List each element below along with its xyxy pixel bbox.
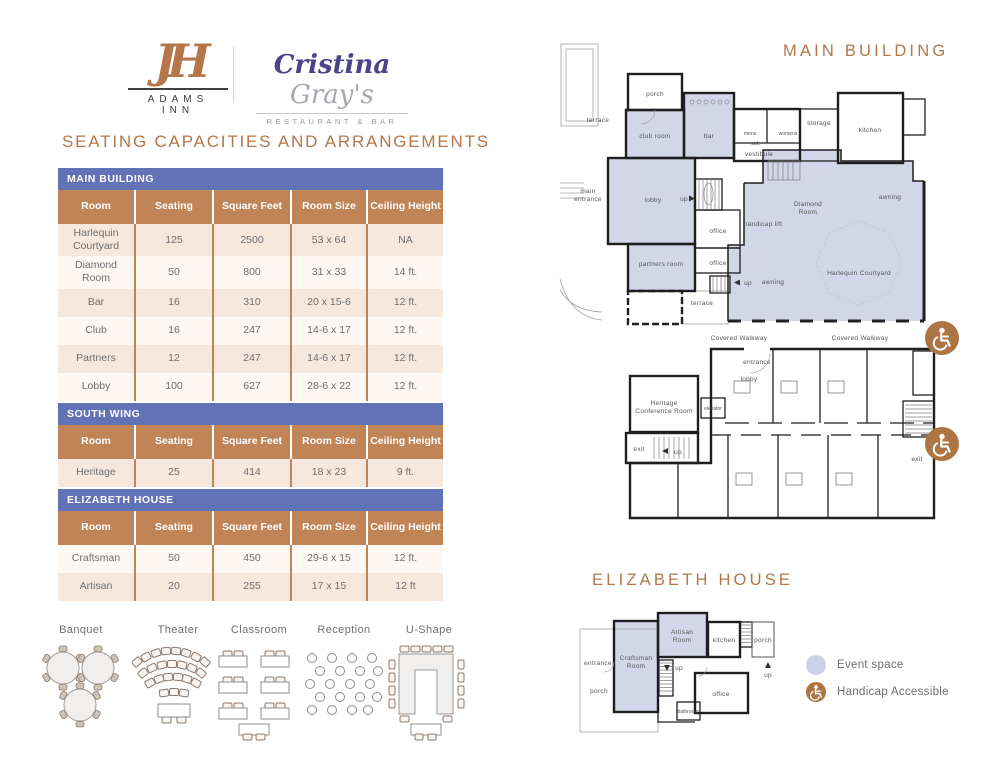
seating-capacities-page: JH ADAMS INN Cristina Gray's RESTAURANT …	[0, 0, 1000, 773]
table-cell: 28-6 x 22	[290, 373, 366, 401]
table-cell: 12 ft.	[366, 289, 443, 317]
elizabeth-house-floor-plan: entrance porch CraftsmanRoom up ArtisanR…	[565, 592, 790, 757]
table-cell: Bar	[58, 289, 134, 317]
plan-label-porch: porch	[754, 637, 772, 644]
table-cell: 247	[212, 317, 290, 345]
wheelchair-glyph-icon	[807, 683, 825, 701]
elizabeth-house-plan-title: ELIZABETH HOUSE	[592, 571, 793, 590]
event-space-swatch-icon	[806, 655, 826, 675]
bar-area	[684, 93, 734, 158]
plan-label-main-entrance: mainentrance	[574, 188, 602, 203]
plan-label-covered-walkway: Covered Walkway	[711, 335, 768, 342]
col-header-ceiling-height: Ceiling Height	[366, 425, 443, 459]
legend-label: Handicap Accessible	[837, 686, 949, 698]
plan-label-womens: womens	[779, 131, 798, 137]
table-cell: 100	[134, 373, 212, 401]
table-row: Craftsman 50 450 29-6 x 15 12 ft.	[58, 545, 443, 573]
col-header-room-size: Room Size	[290, 425, 366, 459]
plan-label-lobby: lobby	[644, 197, 661, 204]
up-arrow-icon	[662, 448, 668, 454]
plan-label-up: up	[764, 672, 772, 679]
table-cell: 450	[212, 545, 290, 573]
plan-label-porch: porch	[646, 91, 664, 98]
arrangement-label: Theater	[132, 624, 224, 636]
table-cell: 50	[134, 545, 212, 573]
arrangement-label: Classroom	[213, 624, 305, 636]
plan-label-elevator: elevator	[704, 406, 722, 412]
col-header-square-feet: Square Feet	[212, 425, 290, 459]
table-cell: NA	[366, 224, 443, 256]
plan-label-up: up	[744, 280, 752, 287]
plan-label-partners-room: partners room	[639, 261, 683, 268]
table-cell: 20 x 15-6	[290, 289, 366, 317]
plan-label-storage: storage	[807, 120, 831, 127]
plan-label-porch: porch	[590, 688, 608, 695]
legend-item-handicap: Handicap Accessible	[806, 682, 949, 702]
arrangement-label: Banquet	[35, 624, 127, 636]
col-header-seating: Seating	[134, 425, 212, 459]
table-cell: 12 ft.	[366, 317, 443, 345]
col-header-square-feet: Square Feet	[212, 511, 290, 545]
col-header-square-feet: Square Feet	[212, 190, 290, 224]
table-row: Club 16 247 14-6 x 17 12 ft.	[58, 317, 443, 345]
arrangement-label: Reception	[298, 624, 390, 636]
arrangement-theater: Theater	[132, 624, 224, 734]
col-header-ceiling-height: Ceiling Height	[366, 190, 443, 224]
arrangement-banquet: Banquet	[35, 624, 127, 734]
col-header-ceiling-height: Ceiling Height	[366, 511, 443, 545]
table-cell: 255	[212, 573, 290, 601]
table-cell: Heritage	[58, 459, 134, 487]
table-cell: 2500	[212, 224, 290, 256]
table-cell: 31 x 33	[290, 256, 366, 288]
col-header-room: Room	[58, 425, 134, 459]
arrangement-classroom: Classroom	[213, 624, 305, 742]
table-cell: 12	[134, 345, 212, 373]
logo-rule	[128, 88, 228, 90]
table-cell: Partners	[58, 345, 134, 373]
table-cell: 14-6 x 17	[290, 345, 366, 373]
table-cell: 16	[134, 317, 212, 345]
table-header-row: Room Seating Square Feet Room Size Ceili…	[58, 425, 443, 459]
table-cell: 14-6 x 17	[290, 317, 366, 345]
plan-label-kitchen: kitchen	[859, 127, 882, 134]
section-band-south-wing: SOUTH WING	[58, 403, 443, 425]
plan-label-office: office	[709, 260, 726, 267]
plan-label-awning: awning	[762, 279, 784, 286]
legend-item-event-space: Event space	[806, 655, 949, 675]
plan-label-cafe: cafe	[751, 141, 761, 147]
table-row: Partners 12 247 14-6 x 17 12 ft.	[58, 345, 443, 373]
plan-label-mens: mens	[744, 131, 757, 137]
plan-label-covered-walkway: Covered Walkway	[832, 335, 889, 342]
table-cell: 125	[134, 224, 212, 256]
table-cell: 18 x 23	[290, 459, 366, 487]
plan-label-lobby: lobby	[740, 376, 757, 383]
handicap-accessible-icon	[925, 321, 959, 355]
table-row: Diamond Room 50 800 31 x 33 14 ft.	[58, 256, 443, 288]
table-header-row: Room Seating Square Feet Room Size Ceili…	[58, 190, 443, 224]
table-row: Heritage 25 414 18 x 23 9 ft.	[58, 459, 443, 487]
table-cell: 17 x 15	[290, 573, 366, 601]
table-cell: 12 ft	[366, 573, 443, 601]
plan-label-terrace: terrace	[691, 300, 713, 307]
u-shape-diagram-icon	[383, 642, 471, 742]
reception-diagram-icon	[298, 642, 386, 734]
table-cell: 9 ft.	[366, 459, 443, 487]
table-row: Lobby 100 627 28-6 x 22 12 ft.	[58, 373, 443, 401]
table-cell: 12 ft.	[366, 345, 443, 373]
page-title: SEATING CAPACITIES AND ARRANGEMENTS	[62, 132, 490, 152]
plan-label-club-room: club room	[639, 133, 670, 140]
table-cell: Craftsman	[58, 545, 134, 573]
table-cell: 12 ft.	[366, 545, 443, 573]
table-cell: 627	[212, 373, 290, 401]
plan-label-bathroom: bathroom	[677, 709, 698, 715]
plan-label-terrace: terrace	[587, 117, 609, 124]
plan-label-up: up	[680, 196, 688, 203]
plan-label-up: up	[675, 665, 683, 672]
table-cell: 53 x 64	[290, 224, 366, 256]
col-header-room: Room	[58, 511, 134, 545]
arrangement-u-shape: U-Shape	[383, 624, 475, 742]
plan-label-artisan-room: ArtisanRoom	[671, 629, 693, 644]
table-row: Artisan 20 255 17 x 15 12 ft	[58, 573, 443, 601]
table-cell: Artisan	[58, 573, 134, 601]
banquet-diagram-icon	[35, 642, 123, 734]
plan-label-awning: awning	[879, 194, 901, 201]
table-cell: 12 ft.	[366, 373, 443, 401]
plan-label-up: up	[674, 449, 682, 456]
col-header-room-size: Room Size	[290, 190, 366, 224]
logo-divider	[233, 46, 234, 102]
table-cell: 16	[134, 289, 212, 317]
table-cell: Club	[58, 317, 134, 345]
plan-label-kitchen: kitchen	[713, 637, 736, 644]
col-header-room-size: Room Size	[290, 511, 366, 545]
classroom-diagram-icon	[213, 642, 297, 742]
col-header-room: Room	[58, 190, 134, 224]
restaurant-tagline: RESTAURANT & BAR	[252, 117, 412, 126]
cristina-grays-logo: Cristina Gray's RESTAURANT & BAR	[252, 50, 412, 126]
table-cell: 310	[212, 289, 290, 317]
table-row: Bar 16 310 20 x 15-6 12 ft.	[58, 289, 443, 317]
jh-monogram: JH	[128, 36, 228, 86]
table-cell: 414	[212, 459, 290, 487]
col-header-seating: Seating	[134, 190, 212, 224]
plan-label-vestibule: vestibule	[745, 151, 773, 158]
table-cell: 800	[212, 256, 290, 288]
plan-label-heritage-conference-room: HeritageConference Room	[635, 400, 692, 415]
capacity-table: MAIN BUILDING Room Seating Square Feet R…	[58, 168, 443, 601]
plan-label-bar: bar	[704, 133, 715, 140]
harlequin-courtyard-area	[728, 150, 924, 321]
table-cell: 20	[134, 573, 212, 601]
table-cell: Diamond Room	[58, 256, 134, 288]
plan-label-handicap-lift: handicap lift	[744, 221, 783, 228]
table-header-row: Room Seating Square Feet Room Size Ceili…	[58, 511, 443, 545]
arrangement-reception: Reception	[298, 624, 390, 734]
table-cell: 247	[212, 345, 290, 373]
hotel-name: ADAMS INN	[128, 94, 228, 116]
table-cell: 50	[134, 256, 212, 288]
plan-label-exit: exit	[911, 456, 922, 463]
legend-label: Event space	[837, 659, 904, 671]
table-cell: Lobby	[58, 373, 134, 401]
restaurant-rule	[256, 113, 408, 114]
table-cell: 25	[134, 459, 212, 487]
adams-inn-logo: JH ADAMS INN	[128, 36, 228, 116]
plan-label-harlequin-courtyard: Harlequin Courtyard	[827, 270, 891, 277]
arrangement-label: U-Shape	[383, 624, 475, 636]
main-building-floor-plan: porch terrace club room bar mens womens …	[558, 33, 986, 525]
plan-label-office: office	[709, 228, 726, 235]
plan-label-exit: exit	[633, 446, 644, 453]
up-arrow-icon	[765, 662, 771, 668]
table-cell: Harlequin Courtyard	[58, 224, 134, 256]
plan-label-entrance: entrance	[743, 359, 771, 366]
plan-legend: Event space Handicap Accessible	[806, 655, 949, 709]
section-band-elizabeth-house: ELIZABETH HOUSE	[58, 489, 443, 511]
table-cell: 29-6 x 15	[290, 545, 366, 573]
table-row: Harlequin Courtyard 125 2500 53 x 64 NA	[58, 224, 443, 256]
handicap-accessible-icon	[806, 682, 826, 702]
plan-label-entrance: entrance	[584, 660, 612, 667]
table-cell: 14 ft.	[366, 256, 443, 288]
plan-label-office: office	[712, 691, 729, 698]
col-header-seating: Seating	[134, 511, 212, 545]
handicap-accessible-icon	[925, 427, 959, 461]
theater-diagram-icon	[132, 642, 216, 734]
section-band-main-building: MAIN BUILDING	[58, 168, 443, 190]
restaurant-name: Cristina Gray's	[252, 50, 412, 110]
